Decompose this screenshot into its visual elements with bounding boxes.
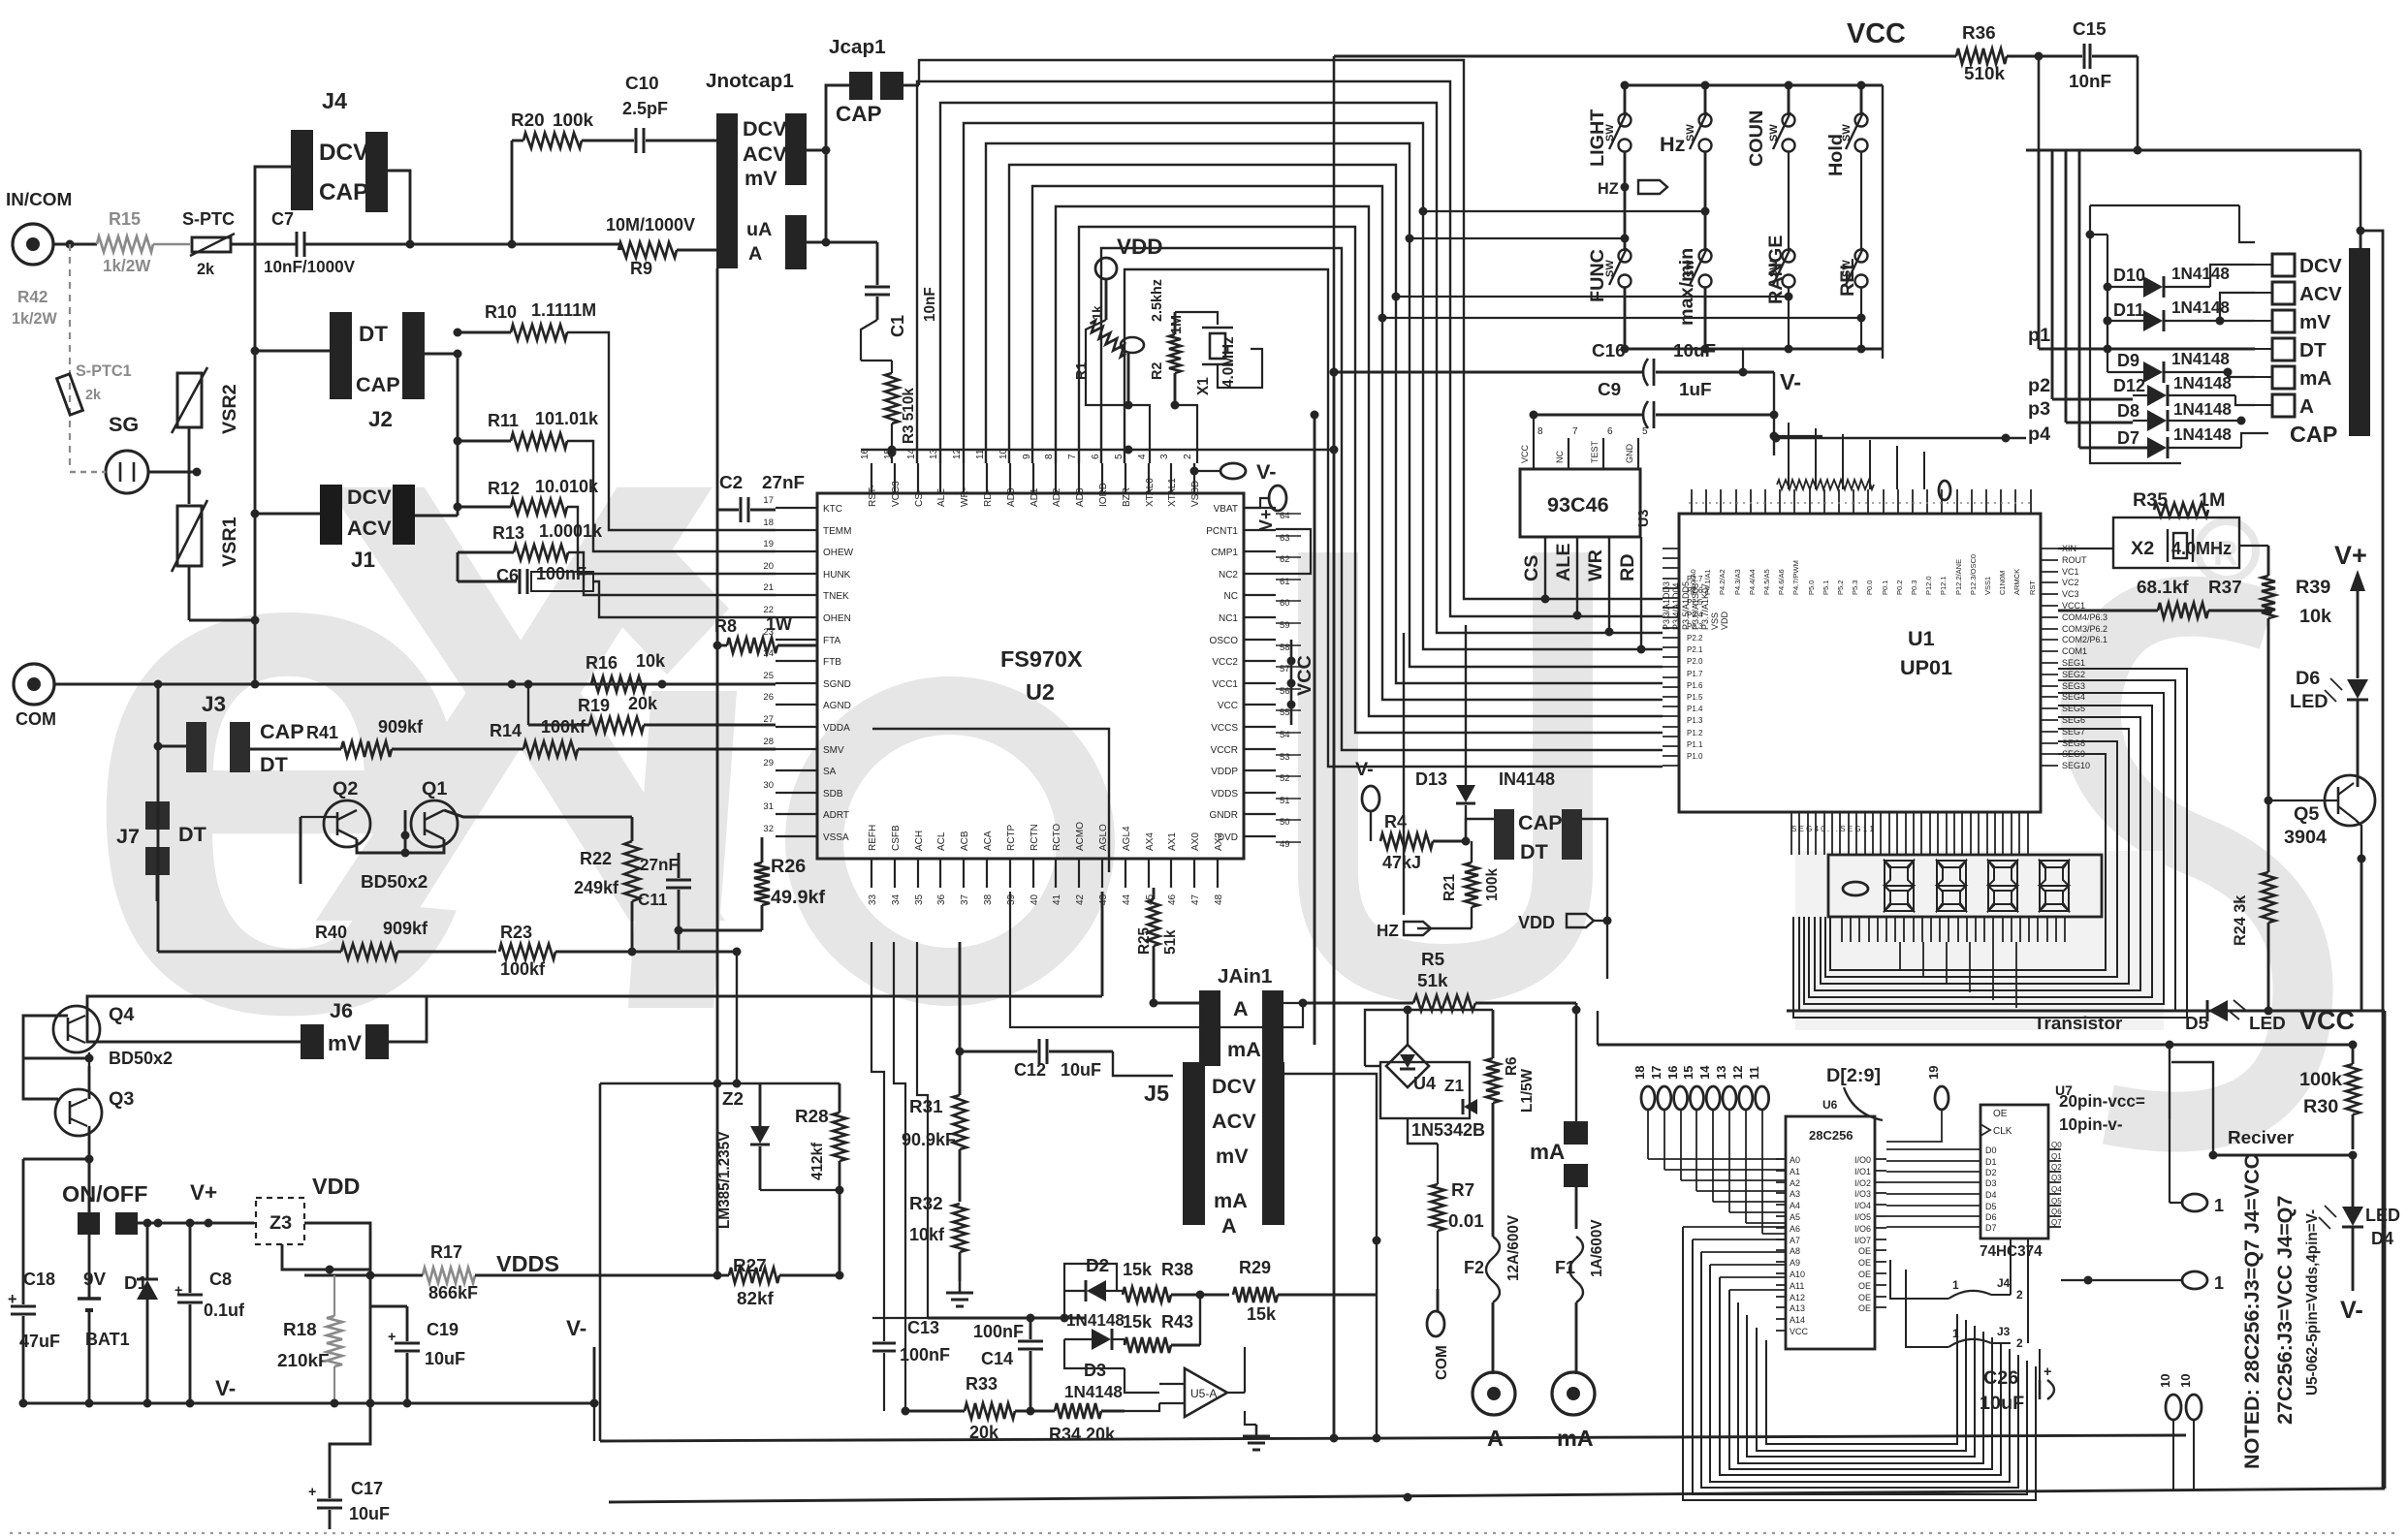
svg-text:U6: U6	[1822, 1098, 1838, 1112]
svg-text:ACV: ACV	[1212, 1109, 1256, 1133]
svg-text:Q6: Q6	[2051, 1208, 2062, 1216]
svg-text:R37: R37	[2208, 578, 2242, 598]
svg-text:1N4148: 1N4148	[2173, 374, 2232, 392]
svg-text:NC2: NC2	[1219, 570, 1238, 580]
svg-text:OHEN: OHEN	[823, 613, 851, 624]
svg-text:R14: R14	[490, 721, 522, 740]
svg-text:COM: COM	[16, 709, 56, 729]
svg-text:BZR: BZR	[1122, 487, 1132, 507]
svg-text:2: 2	[2016, 1336, 2023, 1350]
svg-text:Z2: Z2	[722, 1089, 744, 1110]
svg-text:D5: D5	[2185, 1014, 2208, 1034]
svg-text:SG: SG	[109, 412, 139, 436]
svg-text:R32: R32	[909, 1194, 943, 1214]
svg-text:P0.3: P0.3	[1910, 580, 1918, 595]
svg-text:ALE: ALE	[1553, 543, 1574, 581]
svg-text:21: 21	[763, 582, 774, 593]
svg-text:2.5pF: 2.5pF	[622, 99, 668, 118]
svg-text:17: 17	[763, 495, 774, 506]
svg-text:P2.4: P2.4	[1687, 611, 1703, 619]
svg-text:R19: R19	[578, 696, 610, 715]
svg-text:ACH: ACH	[914, 831, 925, 851]
svg-text:AX0: AX0	[1190, 832, 1201, 851]
svg-text:15: 15	[1681, 1066, 1695, 1080]
svg-text:D4: D4	[2371, 1229, 2393, 1248]
svg-text:R6: R6	[1504, 1056, 1520, 1076]
svg-text:Q4: Q4	[2051, 1185, 2062, 1194]
svg-text:U1: U1	[1908, 626, 1935, 650]
svg-text:R28: R28	[795, 1107, 829, 1127]
svg-text:R36: R36	[1962, 23, 1996, 44]
svg-text:4.0MHz: 4.0MHz	[2171, 539, 2232, 558]
svg-text:A11: A11	[1790, 1281, 1804, 1291]
svg-text:D7: D7	[1985, 1223, 1997, 1233]
svg-text:I/O7: I/O7	[1854, 1236, 1871, 1245]
svg-text:R43: R43	[1161, 1312, 1193, 1332]
svg-text:26: 26	[763, 692, 774, 703]
svg-text:VCC: VCC	[1790, 1327, 1809, 1336]
svg-text:A: A	[748, 243, 762, 265]
svg-text:C15: C15	[2073, 19, 2107, 40]
svg-text:DCV: DCV	[319, 140, 369, 166]
svg-text:38: 38	[983, 894, 994, 905]
svg-text:X1: X1	[1195, 377, 1212, 395]
svg-text:OE: OE	[1858, 1258, 1871, 1268]
svg-text:D5: D5	[1985, 1202, 1997, 1211]
svg-text:DCV: DCV	[743, 116, 787, 141]
svg-text:VSR1: VSR1	[219, 517, 240, 567]
svg-text:31: 31	[763, 801, 774, 812]
svg-text:Z1: Z1	[1444, 1077, 1464, 1095]
svg-text:P4.2/A2: P4.2/A2	[1718, 569, 1727, 595]
svg-text:7: 7	[1067, 454, 1078, 459]
svg-text:R31: R31	[909, 1097, 943, 1117]
svg-text:CAP: CAP	[356, 372, 400, 396]
svg-text:COUN: COUN	[1746, 110, 1767, 167]
svg-text:AX2: AX2	[1214, 832, 1224, 851]
svg-text:REFH: REFH	[868, 825, 878, 851]
svg-text:SEG2: SEG2	[2062, 670, 2085, 679]
svg-text:1uF: 1uF	[1679, 380, 1712, 400]
svg-text:D3: D3	[1985, 1178, 1997, 1188]
svg-text:WR-: WR-	[960, 487, 970, 507]
svg-text:90.9kF: 90.9kF	[902, 1130, 956, 1149]
svg-text:FTA: FTA	[823, 636, 840, 646]
svg-text:1: 1	[2214, 1273, 2224, 1293]
svg-text:P5.0: P5.0	[1807, 580, 1816, 595]
svg-text:D6: D6	[2296, 668, 2320, 689]
svg-text:CAP: CAP	[2290, 422, 2337, 447]
svg-text:X2: X2	[2131, 538, 2154, 559]
svg-text:J4: J4	[322, 88, 347, 113]
svg-text:20pin-vcc=: 20pin-vcc=	[2059, 1092, 2145, 1111]
svg-text:SEG10: SEG10	[2062, 761, 2090, 770]
svg-text:36: 36	[936, 894, 947, 905]
svg-text:RD-: RD-	[983, 489, 994, 507]
svg-text:13: 13	[1714, 1066, 1728, 1080]
svg-text:29: 29	[763, 758, 774, 768]
svg-text:Q0: Q0	[2051, 1141, 2062, 1149]
svg-text:R24 3k: R24 3k	[2232, 894, 2249, 946]
svg-text:C1N0M: C1N0M	[1998, 571, 2007, 595]
svg-text:P4.6/A6: P4.6/A6	[1777, 569, 1786, 595]
svg-text:A4: A4	[1790, 1201, 1800, 1210]
svg-text:LED: LED	[2290, 691, 2329, 712]
svg-text:R30: R30	[2303, 1096, 2338, 1117]
svg-text:OE: OE	[1858, 1270, 1871, 1279]
svg-text:WR: WR	[1585, 549, 1606, 581]
svg-text:A0: A0	[1790, 1155, 1800, 1165]
svg-text:510k: 510k	[1964, 64, 2006, 84]
svg-text:28C256: 28C256	[1809, 1128, 1854, 1143]
svg-text:C10: C10	[625, 74, 659, 94]
svg-text:IN/COM: IN/COM	[6, 190, 72, 210]
svg-text:64: 64	[1280, 511, 1290, 521]
svg-text:46: 46	[1167, 894, 1178, 905]
svg-text:AGLO: AGLO	[1098, 824, 1109, 851]
svg-text:I/O6: I/O6	[1854, 1224, 1871, 1234]
svg-text:210kF: 210kF	[277, 1351, 330, 1371]
svg-text:VSS: VSS	[1710, 612, 1720, 630]
svg-text:VSSA: VSSA	[823, 832, 849, 843]
svg-text:CS-: CS-	[914, 490, 925, 507]
svg-text:S-PTC: S-PTC	[182, 209, 235, 229]
svg-text:R40: R40	[315, 923, 347, 942]
svg-text:SW: SW	[1604, 260, 1616, 277]
svg-text:HUNK: HUNK	[823, 570, 851, 580]
svg-text:3904: 3904	[2284, 827, 2327, 848]
svg-text:+: +	[174, 1283, 182, 1299]
svg-text:OHEW: OHEW	[823, 548, 854, 558]
svg-text:V+: V+	[2334, 541, 2367, 570]
svg-text:COM3/P6.2: COM3/P6.2	[2062, 624, 2107, 634]
svg-text:R22: R22	[580, 849, 612, 868]
svg-text:100kf: 100kf	[541, 717, 586, 737]
svg-text:0.01: 0.01	[1448, 1211, 1484, 1232]
svg-text:SDB: SDB	[823, 789, 843, 800]
svg-text:10M/1000V: 10M/1000V	[606, 215, 695, 235]
svg-text:A8: A8	[1790, 1246, 1800, 1256]
svg-text:UP01: UP01	[1900, 655, 1952, 679]
svg-text:10.010k: 10.010k	[535, 477, 599, 496]
svg-text:D3: D3	[1084, 1361, 1106, 1380]
svg-text:p2: p2	[2028, 375, 2050, 396]
svg-text:P3.4/A1D04: P3.4/A1D04	[1671, 582, 1681, 630]
svg-text:P4.4/A4: P4.4/A4	[1748, 569, 1757, 595]
svg-text:RCTP: RCTP	[1006, 824, 1017, 851]
svg-text:100k: 100k	[553, 110, 594, 131]
svg-text:A7: A7	[1790, 1236, 1800, 1245]
svg-text:10k: 10k	[636, 651, 666, 671]
svg-text:p3: p3	[2028, 398, 2050, 420]
svg-text:RD: RD	[1617, 553, 1638, 581]
svg-text:1k/2W: 1k/2W	[103, 257, 151, 275]
svg-text:CAP: CAP	[319, 179, 368, 205]
svg-text:CLK: CLK	[1993, 1126, 2012, 1137]
svg-text:A: A	[2299, 395, 2314, 418]
svg-text:mV: mV	[328, 1031, 362, 1055]
svg-text:100nF: 100nF	[973, 1322, 1024, 1341]
svg-text:ACMO: ACMO	[1075, 822, 1086, 851]
svg-text:A5: A5	[1790, 1212, 1800, 1222]
svg-text:D1: D1	[1985, 1157, 1997, 1167]
svg-text:P12.0: P12.0	[1924, 576, 1933, 595]
svg-text:1N4148: 1N4148	[2173, 400, 2232, 419]
svg-text:AD2: AD2	[1052, 487, 1062, 507]
svg-text:412kf: 412kf	[809, 1142, 826, 1180]
svg-text:J4: J4	[1997, 1276, 2011, 1290]
svg-text:61: 61	[1280, 577, 1290, 587]
svg-text:20k: 20k	[628, 694, 658, 713]
svg-text:V+: V+	[1256, 509, 1276, 531]
svg-text:Transistor: Transistor	[2034, 1014, 2123, 1034]
svg-text:R13: R13	[492, 523, 524, 543]
svg-text:2k: 2k	[85, 388, 102, 403]
svg-text:249kf: 249kf	[574, 878, 619, 897]
svg-text:A10: A10	[1790, 1270, 1805, 1279]
svg-text:VDD: VDD	[1117, 235, 1163, 259]
svg-text:VBAT: VBAT	[1214, 504, 1238, 515]
svg-text:mA: mA	[1227, 1037, 1261, 1061]
svg-text:LM385/1.235V: LM385/1.235V	[716, 1131, 733, 1229]
svg-text:D10: D10	[2113, 266, 2145, 285]
svg-text:U5-A: U5-A	[1190, 1387, 1217, 1400]
svg-text:19: 19	[763, 539, 774, 549]
svg-text:J7: J7	[116, 824, 140, 848]
svg-text:10nF/1000V: 10nF/1000V	[264, 258, 356, 276]
svg-text:VDD: VDD	[1518, 913, 1555, 932]
svg-text:V-: V-	[566, 1316, 586, 1340]
svg-text:VSSD: VSSD	[1190, 481, 1201, 507]
svg-text:D4: D4	[1985, 1190, 1997, 1200]
svg-text:P4.5/A5: P4.5/A5	[1762, 569, 1771, 595]
svg-text:56: 56	[1280, 686, 1290, 697]
svg-text:CAP: CAP	[260, 719, 304, 743]
svg-text:VDDS: VDDS	[496, 1251, 559, 1276]
svg-text:2.5khz: 2.5khz	[1150, 279, 1165, 322]
svg-text:R7: R7	[1451, 1180, 1474, 1201]
svg-text:R23: R23	[500, 923, 532, 942]
svg-text:C16: C16	[1592, 341, 1626, 361]
svg-text:VC2: VC2	[2062, 578, 2079, 587]
svg-text:SW: SW	[1841, 124, 1853, 141]
svg-text:R33: R33	[966, 1374, 998, 1394]
svg-text:+: +	[8, 1291, 16, 1308]
svg-text:A6: A6	[1790, 1224, 1800, 1234]
svg-text:R41: R41	[306, 723, 338, 742]
svg-text:P5.3: P5.3	[1851, 580, 1859, 595]
svg-text:DT: DT	[260, 752, 288, 776]
svg-text:P2.3: P2.3	[1687, 622, 1703, 631]
svg-text:C19: C19	[427, 1320, 459, 1339]
svg-text:SGND: SGND	[823, 679, 851, 690]
svg-text:VDDP: VDDP	[1211, 767, 1238, 777]
svg-text:Q4: Q4	[109, 1004, 134, 1025]
svg-text:5: 5	[1114, 454, 1125, 459]
svg-text:C7: C7	[271, 209, 294, 229]
svg-text:Jnotcap1: Jnotcap1	[706, 70, 794, 92]
svg-text:43: 43	[1098, 894, 1109, 905]
svg-text:V-: V-	[2340, 1297, 2363, 1324]
svg-text:CAP: CAP	[1518, 810, 1563, 834]
svg-text:VC3: VC3	[2062, 589, 2079, 599]
svg-text:SW: SW	[1768, 260, 1780, 277]
svg-text:VCC: VCC	[1294, 655, 1315, 696]
svg-text:R17: R17	[430, 1242, 462, 1262]
svg-text:49.9kf: 49.9kf	[771, 887, 826, 908]
svg-text:48: 48	[1214, 894, 1224, 905]
svg-text:P3.3/A1DD3: P3.3/A1DD3	[1662, 581, 1671, 630]
svg-text:P4.0/A0: P4.0/A0	[1689, 569, 1697, 595]
svg-text:27: 27	[763, 714, 774, 725]
svg-text:VSS1: VSS1	[1983, 577, 1992, 595]
svg-text:HZ: HZ	[1377, 922, 1399, 940]
svg-text:I/O2: I/O2	[1854, 1178, 1871, 1188]
svg-text:ACV: ACV	[347, 516, 392, 540]
svg-text:5: 5	[1642, 426, 1648, 437]
svg-text:32: 32	[763, 824, 774, 834]
svg-text:mA: mA	[2299, 367, 2331, 390]
svg-text:P2.1: P2.1	[1687, 645, 1703, 654]
svg-text:15k: 15k	[1123, 1260, 1153, 1279]
svg-text:1N4148: 1N4148	[2171, 350, 2230, 368]
svg-text:P4.3/A3: P4.3/A3	[1733, 569, 1742, 595]
svg-text:P5.2: P5.2	[1836, 580, 1845, 595]
svg-text:FTB: FTB	[823, 657, 841, 668]
svg-text:R15: R15	[109, 209, 141, 229]
svg-text:VCC2: VCC2	[1212, 657, 1238, 668]
svg-text:R29: R29	[1239, 1258, 1271, 1277]
svg-text:OSCO: OSCO	[1210, 636, 1239, 646]
svg-text:10nF: 10nF	[2069, 72, 2111, 92]
svg-text:0.1uf: 0.1uf	[204, 1301, 245, 1320]
svg-text:P1.7: P1.7	[1687, 670, 1703, 678]
svg-text:JAin1: JAin1	[1218, 965, 1272, 988]
svg-text:+: +	[308, 1485, 316, 1500]
svg-text:COM2/P6.1: COM2/P6.1	[2062, 635, 2107, 644]
svg-text:TEST: TEST	[1590, 440, 1600, 463]
svg-text:V+: V+	[190, 1180, 217, 1205]
svg-text:Q2: Q2	[2051, 1163, 2062, 1172]
svg-text:1W: 1W	[766, 614, 792, 634]
svg-text:16: 16	[1665, 1066, 1680, 1080]
svg-text:100k: 100k	[2299, 1069, 2343, 1090]
svg-text:CAP: CAP	[836, 102, 882, 126]
svg-text:F2: F2	[1464, 1258, 1484, 1277]
svg-text:10uF: 10uF	[425, 1349, 465, 1368]
svg-text:OE: OE	[1858, 1303, 1871, 1313]
svg-text:DT: DT	[2299, 339, 2327, 361]
svg-text:1N4148: 1N4148	[2173, 425, 2232, 444]
svg-text:10uF: 10uF	[349, 1504, 390, 1523]
svg-text:V-: V-	[1355, 759, 1374, 780]
svg-text:10uF: 10uF	[1673, 341, 1716, 361]
svg-text:68.1kf: 68.1kf	[2137, 578, 2189, 598]
svg-text:I/O4: I/O4	[1854, 1201, 1871, 1210]
svg-text:D6: D6	[1985, 1212, 1997, 1222]
svg-text:P1.0: P1.0	[1687, 752, 1703, 761]
svg-text:J5: J5	[1144, 1081, 1169, 1106]
svg-text:D7: D7	[2117, 428, 2139, 448]
svg-text:VC1: VC1	[2062, 567, 2079, 577]
svg-text:51: 51	[1280, 796, 1290, 806]
svg-text:TNEK: TNEK	[823, 591, 849, 602]
svg-text:I/O3: I/O3	[1854, 1189, 1871, 1199]
svg-text:6: 6	[1091, 454, 1101, 459]
svg-text:10nF: 10nF	[922, 287, 938, 322]
svg-text:D[2:9]: D[2:9]	[1826, 1065, 1881, 1086]
svg-text:VSR2: VSR2	[219, 384, 240, 434]
svg-text:53: 53	[1280, 752, 1290, 763]
svg-text:R34 20k: R34 20k	[1049, 1425, 1116, 1444]
svg-text:909kf: 909kf	[383, 919, 428, 938]
svg-text:+: +	[388, 1330, 396, 1345]
svg-text:U5-062-5pin=Vdds,4pin=V-: U5-062-5pin=Vdds,4pin=V-	[2304, 1209, 2321, 1396]
svg-text:R20: R20	[511, 110, 545, 131]
svg-text:mV: mV	[1216, 1144, 1249, 1168]
svg-text:R10: R10	[485, 302, 517, 322]
svg-text:C12: C12	[1014, 1060, 1046, 1080]
svg-text:D2: D2	[1985, 1168, 1997, 1177]
svg-text:V-: V-	[1780, 369, 1801, 394]
svg-text:mA: mA	[1214, 1188, 1248, 1212]
svg-text:ACL: ACL	[936, 831, 947, 851]
svg-text:C11: C11	[638, 891, 668, 909]
svg-text:R26: R26	[771, 856, 806, 877]
svg-text:A3: A3	[1790, 1189, 1800, 1199]
svg-text:35: 35	[914, 894, 925, 905]
svg-text:ARMCK: ARMCK	[2012, 569, 2021, 595]
svg-text:XTAL1: XTAL1	[1167, 478, 1178, 507]
svg-text:C18: C18	[23, 1270, 55, 1289]
svg-text:SW: SW	[1841, 260, 1853, 277]
svg-text:28: 28	[763, 737, 774, 747]
svg-text:10pin-v-: 10pin-v-	[2059, 1115, 2123, 1134]
svg-text:4.0MHz: 4.0MHz	[1220, 336, 1237, 388]
svg-text:A14: A14	[1790, 1315, 1805, 1325]
svg-text:P0.1: P0.1	[1881, 580, 1889, 595]
svg-text:A12: A12	[1790, 1293, 1805, 1302]
svg-text:Q5: Q5	[2294, 803, 2319, 825]
svg-text:R9: R9	[630, 259, 652, 278]
svg-text:47: 47	[1190, 894, 1201, 905]
svg-text:VCC3: VCC3	[891, 481, 902, 507]
svg-text:Z3: Z3	[269, 1212, 292, 1234]
svg-text:D2: D2	[1086, 1256, 1109, 1276]
svg-text:DT: DT	[1520, 839, 1548, 863]
svg-text:Q1: Q1	[2051, 1152, 2062, 1161]
svg-text:R5: R5	[1421, 950, 1444, 970]
svg-text:866kF: 866kF	[428, 1283, 478, 1302]
svg-text:ACV: ACV	[743, 141, 787, 166]
svg-text:KTC: KTC	[823, 504, 842, 515]
svg-text:OE: OE	[1993, 1109, 2008, 1119]
svg-text:SMV: SMV	[823, 745, 844, 756]
svg-text:2: 2	[2016, 1288, 2023, 1302]
svg-text:J2: J2	[368, 407, 393, 431]
svg-text:VCC: VCC	[1520, 444, 1530, 463]
svg-text:ON/OFF: ON/OFF	[62, 1181, 147, 1207]
svg-text:D9: D9	[2117, 351, 2139, 370]
svg-text:VCCR: VCCR	[1211, 745, 1238, 756]
svg-text:SEG8: SEG8	[2062, 738, 2085, 748]
svg-text:VCC1: VCC1	[1212, 679, 1238, 690]
svg-text:A: A	[1233, 996, 1249, 1020]
svg-text:GNDR: GNDR	[1210, 810, 1238, 821]
svg-text:VDDS: VDDS	[1211, 789, 1238, 800]
svg-text:C17: C17	[351, 1479, 383, 1498]
svg-text:Q2: Q2	[333, 778, 358, 800]
